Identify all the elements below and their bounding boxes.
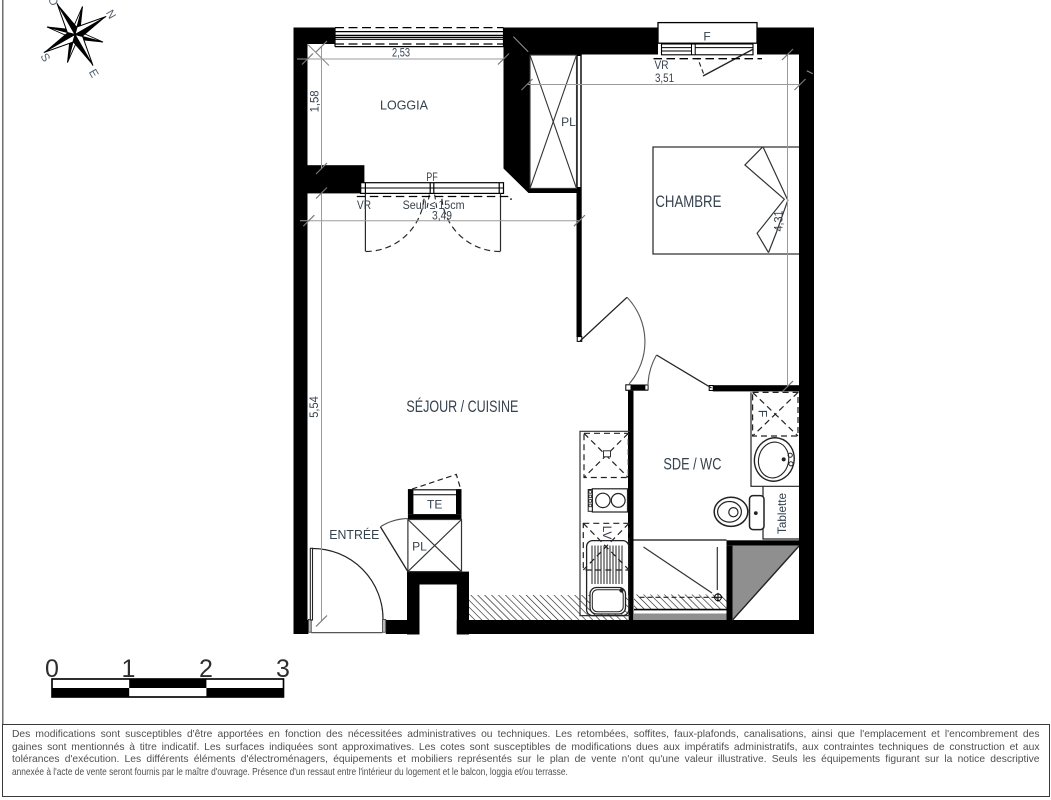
svg-text:3,49: 3,49: [432, 208, 452, 222]
svg-text:VR: VR: [655, 58, 669, 72]
svg-text:S: S: [37, 52, 51, 65]
svg-text:4,31: 4,31: [772, 210, 786, 231]
svg-text:N: N: [103, 8, 118, 21]
svg-text:SÉJOUR / CUISINE: SÉJOUR / CUISINE: [406, 397, 518, 416]
svg-text:F: F: [756, 410, 770, 417]
svg-text:Tablette: Tablette: [775, 493, 789, 534]
svg-text:LOGGIA: LOGGIA: [380, 98, 428, 113]
svg-text:PL: PL: [412, 539, 427, 553]
svg-text:E: E: [86, 67, 100, 80]
svg-text:3,51: 3,51: [655, 71, 674, 85]
svg-text:PL: PL: [561, 115, 576, 129]
svg-text:5,54: 5,54: [307, 396, 321, 418]
svg-text:TE: TE: [427, 498, 442, 512]
svg-text:CHAMBRE: CHAMBRE: [655, 192, 721, 211]
svg-text:1,58: 1,58: [307, 90, 321, 112]
svg-text:SDE / WC: SDE / WC: [663, 455, 721, 474]
svg-text:VR: VR: [357, 198, 371, 212]
svg-text:F: F: [703, 30, 710, 44]
svg-text:ENTRÉE: ENTRÉE: [329, 527, 379, 542]
svg-text:2,53: 2,53: [392, 46, 410, 60]
svg-text:LV: LV: [600, 526, 614, 540]
svg-text:PF: PF: [426, 170, 438, 184]
